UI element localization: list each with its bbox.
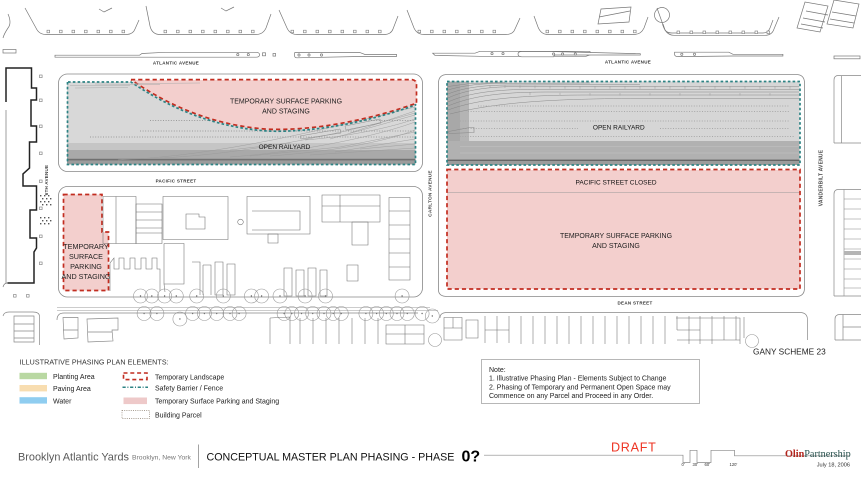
svg-text:VANDERBILT AVENUE: VANDERBILT AVENUE	[819, 149, 825, 206]
svg-text:6TH AVENUE: 6TH AVENUE	[44, 165, 49, 196]
svg-text:TEMPORARY: TEMPORARY	[63, 242, 109, 251]
svg-text:0?: 0?	[462, 449, 481, 466]
svg-text:TEMPORARY SURFACE PARKING: TEMPORARY SURFACE PARKING	[230, 99, 342, 106]
svg-text:120': 120'	[730, 462, 738, 467]
svg-text:Planting Area: Planting Area	[53, 374, 95, 381]
svg-text:July 18, 2006: July 18, 2006	[817, 463, 850, 469]
svg-text:Brooklyn Atlantic Yards: Brooklyn Atlantic Yards	[18, 452, 130, 464]
svg-text:ILLUSTRATIVE PHASING PLAN ELEM: ILLUSTRATIVE PHASING PLAN ELEMENTS:	[20, 359, 169, 367]
svg-text:AND STAGING: AND STAGING	[592, 243, 640, 250]
svg-text:GANY SCHEME 23: GANY SCHEME 23	[753, 347, 826, 357]
svg-text:1. Illustrative Phasing Plan -: 1. Illustrative Phasing Plan - Elements …	[489, 376, 667, 383]
svg-text:ATLANTIC AVENUE: ATLANTIC AVENUE	[605, 60, 651, 65]
svg-text:DRAFT: DRAFT	[611, 441, 656, 455]
svg-text:PACIFIC STREET: PACIFIC STREET	[156, 179, 197, 184]
svg-text:OlinPartnership: OlinPartnership	[785, 449, 851, 460]
svg-text:DEAN STREET: DEAN STREET	[617, 301, 652, 306]
svg-text:Brooklyn, New York: Brooklyn, New York	[132, 455, 192, 462]
svg-text:Paving Area: Paving Area	[53, 386, 91, 393]
svg-text:Note:: Note:	[489, 367, 506, 374]
svg-text:Water: Water	[53, 398, 72, 405]
svg-text:ATLANTIC AVENUE: ATLANTIC AVENUE	[153, 61, 199, 66]
svg-text:0': 0'	[682, 462, 685, 467]
svg-text:30': 30'	[693, 462, 699, 467]
svg-text:AND STAGING: AND STAGING	[262, 109, 310, 116]
svg-text:AND STAGING: AND STAGING	[62, 272, 111, 281]
svg-text:CARLTON AVENUE: CARLTON AVENUE	[428, 170, 434, 217]
svg-text:Building Parcel: Building Parcel	[155, 413, 202, 420]
svg-text:OPEN RAILYARD: OPEN RAILYARD	[593, 125, 645, 132]
svg-text:Safety Barrier / Fence: Safety Barrier / Fence	[155, 385, 223, 392]
svg-text:CONCEPTUAL MASTER PLAN PHASING: CONCEPTUAL MASTER PLAN PHASING - PHASE	[207, 452, 455, 464]
svg-text:OPEN RAILYARD: OPEN RAILYARD	[259, 144, 311, 151]
svg-text:PARKING: PARKING	[70, 262, 102, 271]
svg-text:2. Phasing of Temporary and Pe: 2. Phasing of Temporary and Permanent Op…	[489, 384, 671, 391]
svg-text:Temporary Landscape: Temporary Landscape	[155, 375, 224, 382]
svg-text:PACIFIC STREET CLOSED: PACIFIC STREET CLOSED	[575, 180, 656, 187]
svg-text:Temporary Surface Parking and: Temporary Surface Parking and Staging	[155, 398, 279, 405]
svg-text:60': 60'	[705, 462, 711, 467]
svg-text:Commence on any Parcel and Pro: Commence on any Parcel and Proceed in an…	[489, 393, 653, 400]
svg-text:TEMPORARY SURFACE PARKING: TEMPORARY SURFACE PARKING	[560, 233, 672, 240]
svg-text:SURFACE: SURFACE	[69, 252, 103, 261]
